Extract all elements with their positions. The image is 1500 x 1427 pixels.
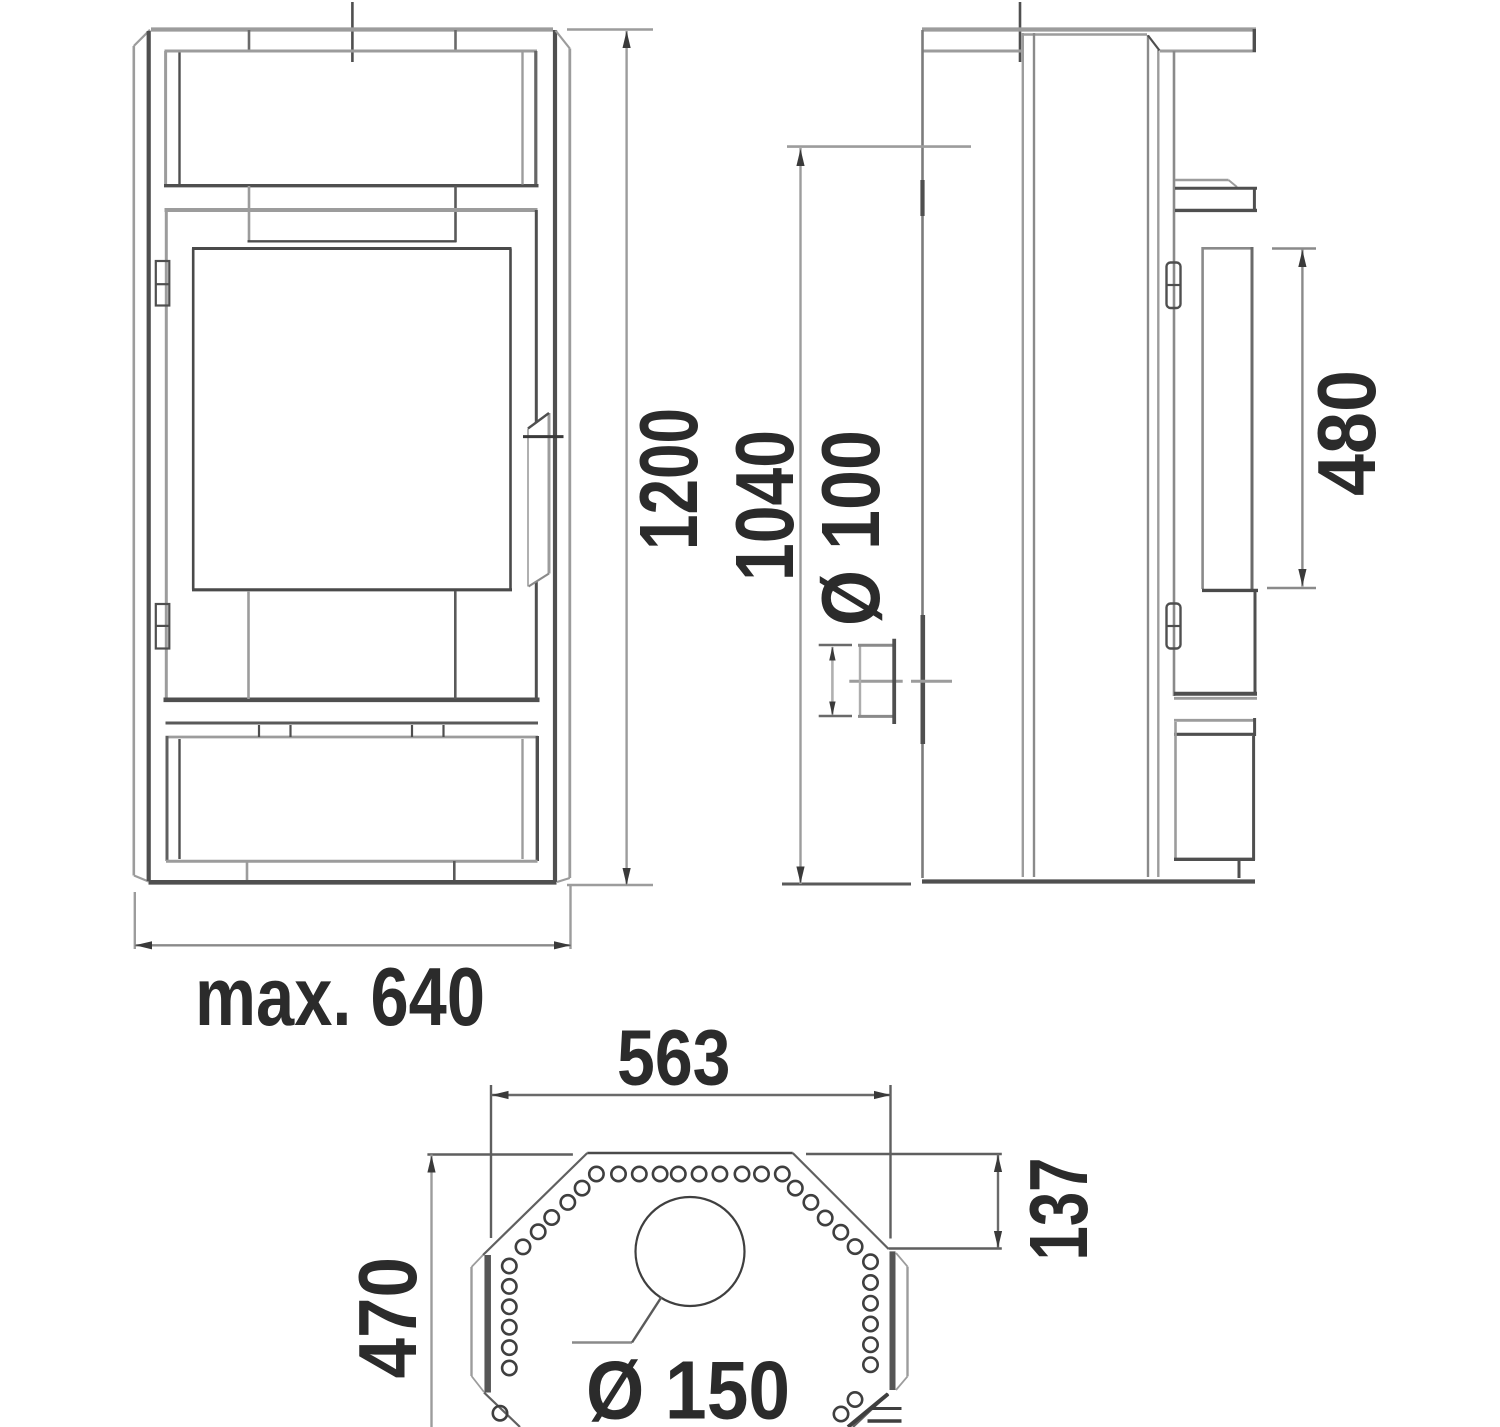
svg-text:Ø 100: Ø 100: [804, 430, 897, 626]
svg-text:563: 563: [617, 1012, 731, 1101]
svg-text:137: 137: [1012, 1158, 1105, 1261]
svg-text:1040: 1040: [718, 430, 811, 581]
svg-text:1200: 1200: [622, 408, 715, 550]
svg-text:Ø 150: Ø 150: [586, 1344, 790, 1427]
svg-text:480: 480: [1300, 370, 1393, 496]
svg-text:max. 640: max. 640: [195, 950, 485, 1043]
svg-text:470: 470: [341, 1257, 434, 1379]
